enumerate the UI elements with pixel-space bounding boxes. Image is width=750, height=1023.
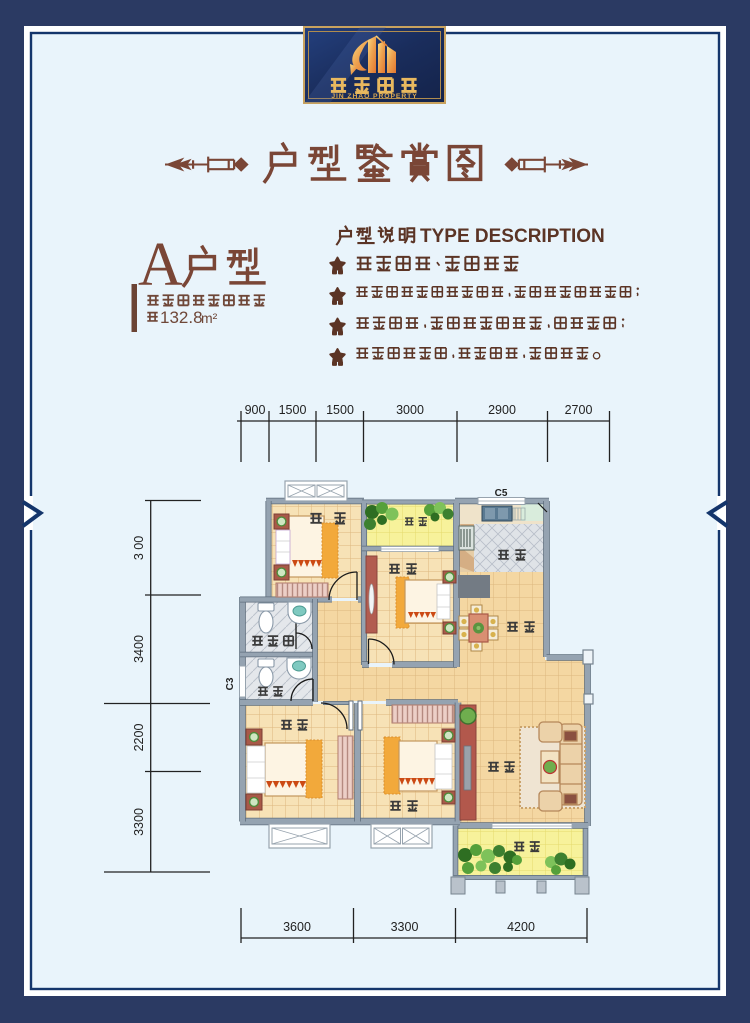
- svg-text:2900: 2900: [488, 403, 516, 417]
- svg-text:m²: m²: [201, 310, 218, 326]
- svg-text:132.8: 132.8: [160, 308, 203, 327]
- svg-text:C5: C5: [495, 488, 508, 499]
- svg-text:900: 900: [245, 403, 266, 417]
- svg-text:3300: 3300: [132, 808, 146, 836]
- svg-text:4200: 4200: [507, 920, 535, 934]
- svg-text:3400: 3400: [132, 635, 146, 663]
- svg-text:C3: C3: [225, 677, 236, 690]
- svg-text:A: A: [138, 231, 183, 299]
- svg-text:2700: 2700: [565, 403, 593, 417]
- svg-text:3300: 3300: [391, 920, 419, 934]
- svg-text:1500: 1500: [326, 403, 354, 417]
- svg-text:3600: 3600: [283, 920, 311, 934]
- svg-text:2200: 2200: [132, 724, 146, 752]
- svg-text:JIN ZHAO PROPERTY: JIN ZHAO PROPERTY: [331, 93, 417, 100]
- svg-text:TYPE DESCRIPTION: TYPE DESCRIPTION: [420, 226, 605, 247]
- svg-text:1500: 1500: [279, 403, 307, 417]
- svg-text:3 00: 3 00: [132, 536, 146, 560]
- svg-text:3000: 3000: [396, 403, 424, 417]
